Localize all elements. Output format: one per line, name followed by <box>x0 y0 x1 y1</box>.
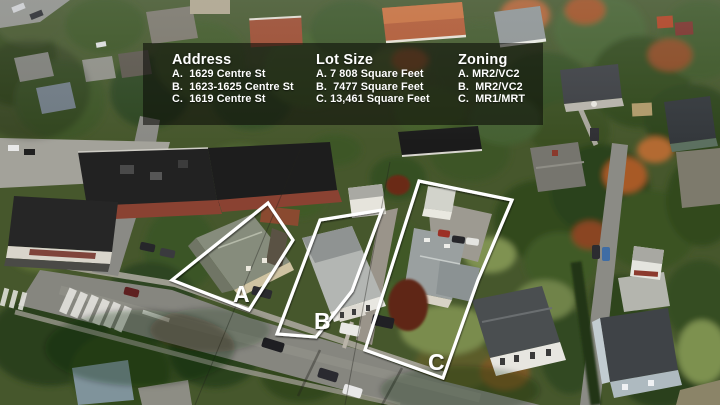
address-heading: Address <box>172 52 294 68</box>
lot-size-item-b: B. 7477 Square Feet <box>316 81 430 94</box>
lot-c-label: C <box>428 349 445 375</box>
zoning-item-b: B. MR2/VC2 <box>458 81 525 94</box>
lot-size-heading: Lot Size <box>316 52 430 68</box>
lot-a-label: A <box>233 281 250 307</box>
lot-size-item-c: C. 13,461 Square Feet <box>316 93 430 106</box>
address-column: Address A. 1629 Centre St B. 1623-1625 C… <box>172 43 294 106</box>
aerial-listing-image: A B C Address A. 1629 Centre St B. 1623-… <box>0 0 720 405</box>
lot-b-label: B <box>314 308 331 334</box>
address-item-a: A. 1629 Centre St <box>172 68 294 81</box>
address-item-c: C. 1619 Centre St <box>172 93 294 106</box>
zoning-item-c: C. MR1/MRT <box>458 93 525 106</box>
zoning-heading: Zoning <box>458 52 525 68</box>
info-panel: Address A. 1629 Centre St B. 1623-1625 C… <box>143 43 543 125</box>
lot-size-column: Lot Size A. 7 808 Square Feet B. 7477 Sq… <box>316 43 430 106</box>
zoning-column: Zoning A. MR2/VC2 B. MR2/VC2 C. MR1/MRT <box>458 43 525 106</box>
address-item-b: B. 1623-1625 Centre St <box>172 81 294 94</box>
zoning-item-a: A. MR2/VC2 <box>458 68 525 81</box>
lot-size-item-a: A. 7 808 Square Feet <box>316 68 430 81</box>
